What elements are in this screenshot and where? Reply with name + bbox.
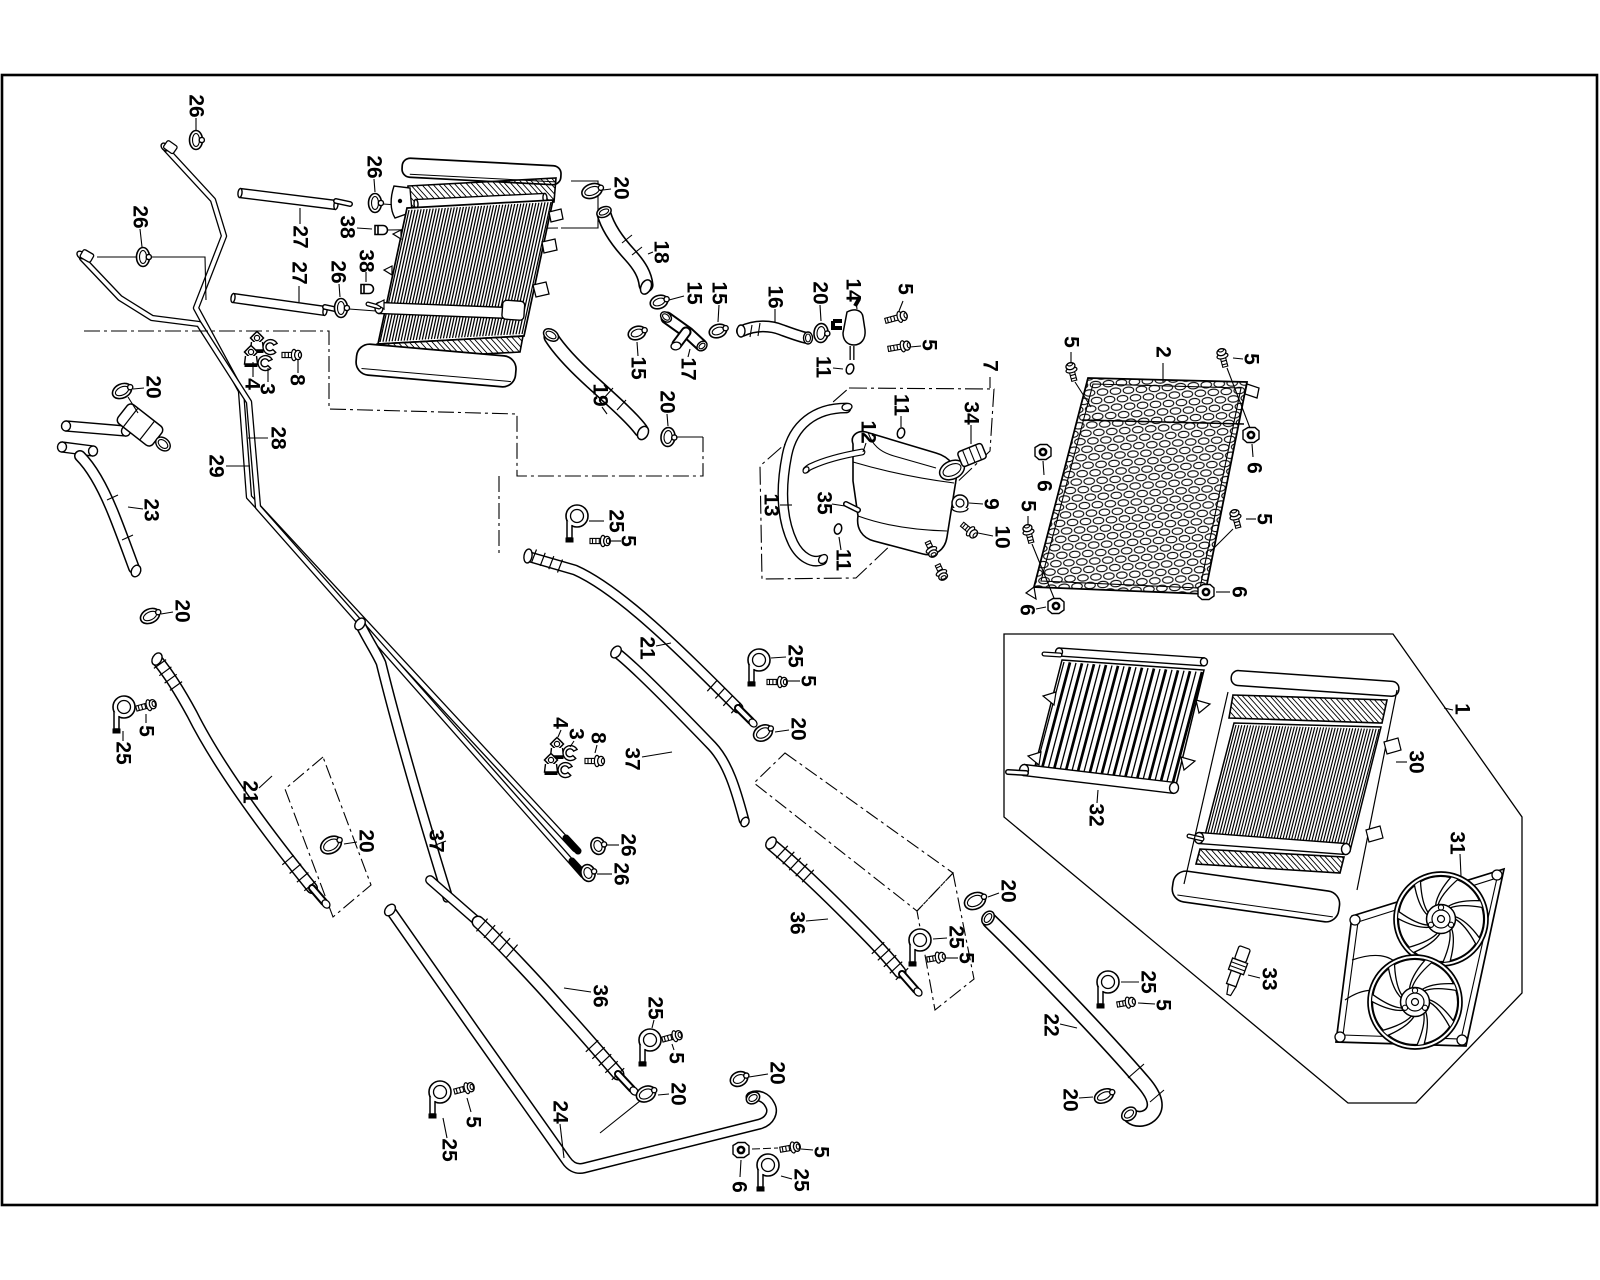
svg-text:8: 8 bbox=[286, 374, 309, 386]
svg-text:25: 25 bbox=[644, 996, 667, 1020]
svg-text:13: 13 bbox=[760, 493, 783, 516]
svg-text:21: 21 bbox=[636, 636, 659, 660]
svg-text:15: 15 bbox=[627, 356, 650, 380]
svg-text:27: 27 bbox=[288, 261, 311, 284]
svg-text:25: 25 bbox=[112, 741, 135, 765]
svg-text:20: 20 bbox=[809, 281, 832, 304]
svg-text:12: 12 bbox=[857, 420, 880, 443]
svg-text:20: 20 bbox=[610, 176, 633, 199]
svg-text:34: 34 bbox=[960, 401, 983, 425]
svg-text:25: 25 bbox=[1137, 970, 1160, 994]
svg-text:6: 6 bbox=[1016, 604, 1039, 616]
svg-text:28: 28 bbox=[267, 426, 290, 450]
svg-text:2: 2 bbox=[1152, 346, 1175, 358]
svg-text:5: 5 bbox=[1152, 999, 1175, 1011]
svg-text:25: 25 bbox=[784, 644, 807, 668]
svg-text:16: 16 bbox=[764, 285, 787, 308]
svg-text:36: 36 bbox=[589, 984, 612, 1007]
svg-text:24: 24 bbox=[549, 1100, 572, 1124]
svg-text:11: 11 bbox=[832, 549, 855, 572]
svg-text:14: 14 bbox=[842, 278, 865, 302]
svg-text:37: 37 bbox=[425, 829, 448, 852]
svg-text:38: 38 bbox=[355, 249, 378, 273]
svg-text:3: 3 bbox=[565, 728, 588, 740]
svg-text:15: 15 bbox=[683, 281, 706, 305]
svg-text:26: 26 bbox=[617, 833, 640, 856]
svg-text:5: 5 bbox=[1017, 500, 1040, 512]
svg-text:29: 29 bbox=[205, 454, 228, 477]
svg-text:20: 20 bbox=[787, 717, 810, 740]
svg-text:17: 17 bbox=[677, 357, 700, 380]
svg-text:23: 23 bbox=[140, 498, 163, 521]
svg-text:27: 27 bbox=[289, 225, 312, 248]
svg-text:30: 30 bbox=[1405, 750, 1428, 773]
svg-text:5: 5 bbox=[894, 283, 917, 295]
svg-text:37: 37 bbox=[621, 747, 644, 770]
svg-text:38: 38 bbox=[336, 215, 359, 239]
svg-text:5: 5 bbox=[135, 725, 158, 737]
svg-text:8: 8 bbox=[587, 732, 610, 744]
svg-text:26: 26 bbox=[363, 155, 386, 178]
svg-text:6: 6 bbox=[1228, 586, 1251, 598]
svg-text:6: 6 bbox=[728, 1181, 751, 1193]
svg-text:33: 33 bbox=[1258, 967, 1281, 990]
svg-text:5: 5 bbox=[462, 1116, 485, 1128]
svg-text:11: 11 bbox=[812, 356, 835, 379]
svg-text:20: 20 bbox=[766, 1061, 789, 1084]
svg-text:3: 3 bbox=[256, 383, 279, 395]
svg-text:6: 6 bbox=[1243, 462, 1266, 474]
svg-text:15: 15 bbox=[708, 281, 731, 305]
svg-text:5: 5 bbox=[665, 1052, 688, 1064]
svg-text:21: 21 bbox=[239, 780, 262, 804]
svg-text:5: 5 bbox=[810, 1146, 833, 1158]
svg-text:26: 26 bbox=[610, 862, 633, 885]
svg-text:26: 26 bbox=[185, 94, 208, 117]
svg-text:26: 26 bbox=[129, 205, 152, 228]
svg-text:20: 20 bbox=[1059, 1088, 1082, 1111]
svg-text:19: 19 bbox=[589, 383, 612, 406]
svg-text:35: 35 bbox=[813, 491, 836, 515]
svg-text:25: 25 bbox=[438, 1138, 461, 1162]
svg-text:32: 32 bbox=[1085, 803, 1108, 826]
svg-text:25: 25 bbox=[605, 509, 628, 533]
svg-text:5: 5 bbox=[918, 339, 941, 351]
svg-text:25: 25 bbox=[790, 1168, 813, 1192]
svg-text:36: 36 bbox=[786, 911, 809, 934]
svg-text:1: 1 bbox=[1451, 703, 1474, 715]
svg-text:5: 5 bbox=[1060, 336, 1083, 348]
svg-text:11: 11 bbox=[890, 394, 913, 417]
svg-text:20: 20 bbox=[171, 599, 194, 622]
svg-text:20: 20 bbox=[997, 879, 1020, 902]
svg-text:20: 20 bbox=[667, 1082, 690, 1105]
svg-text:6: 6 bbox=[1033, 480, 1056, 492]
svg-text:20: 20 bbox=[656, 390, 679, 413]
svg-text:25: 25 bbox=[945, 925, 968, 949]
svg-text:20: 20 bbox=[142, 375, 165, 398]
svg-text:10: 10 bbox=[991, 525, 1014, 548]
svg-text:22: 22 bbox=[1040, 1013, 1063, 1036]
svg-text:31: 31 bbox=[1446, 831, 1469, 855]
svg-text:26: 26 bbox=[327, 260, 350, 283]
svg-text:20: 20 bbox=[355, 829, 378, 852]
svg-text:7: 7 bbox=[979, 360, 1002, 372]
